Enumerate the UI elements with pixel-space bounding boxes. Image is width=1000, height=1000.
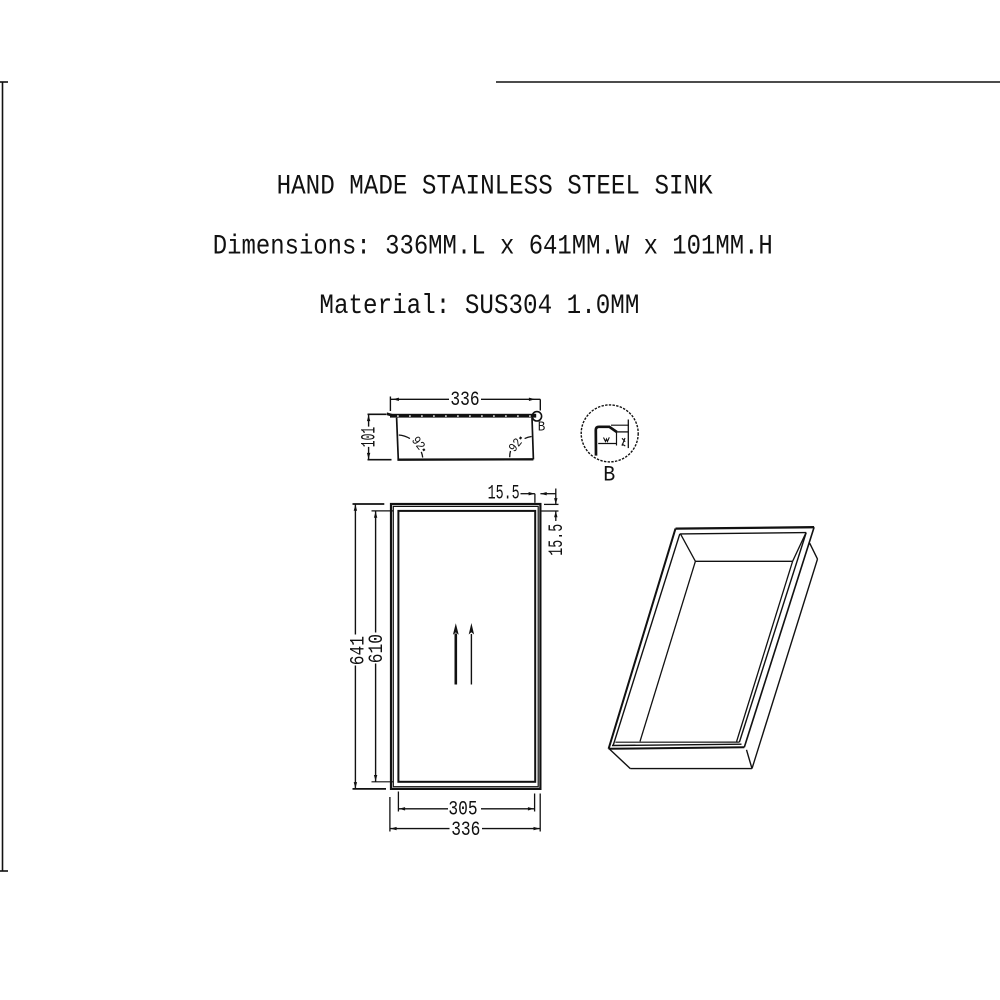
svg-text:336: 336 (450, 388, 479, 411)
svg-text:B: B (538, 419, 546, 435)
svg-text:336: 336 (451, 818, 480, 841)
svg-text:610: 610 (365, 634, 388, 663)
svg-text:15.5: 15.5 (488, 482, 520, 505)
svg-text:92: 92 (506, 435, 526, 455)
svg-text:B: B (603, 464, 615, 488)
svg-text:HAND MADE STAINLESS STEEL SINK: HAND MADE STAINLESS STEEL SINK (277, 170, 713, 202)
svg-text:Material: SUS304 1.0MM: Material: SUS304 1.0MM (319, 289, 639, 321)
svg-text:101: 101 (358, 427, 381, 447)
svg-text:15.5: 15.5 (545, 524, 568, 556)
svg-text:Dimensions: 336MM.L x 641MM.W: Dimensions: 336MM.L x 641MM.W x 101MM.H (213, 230, 773, 262)
